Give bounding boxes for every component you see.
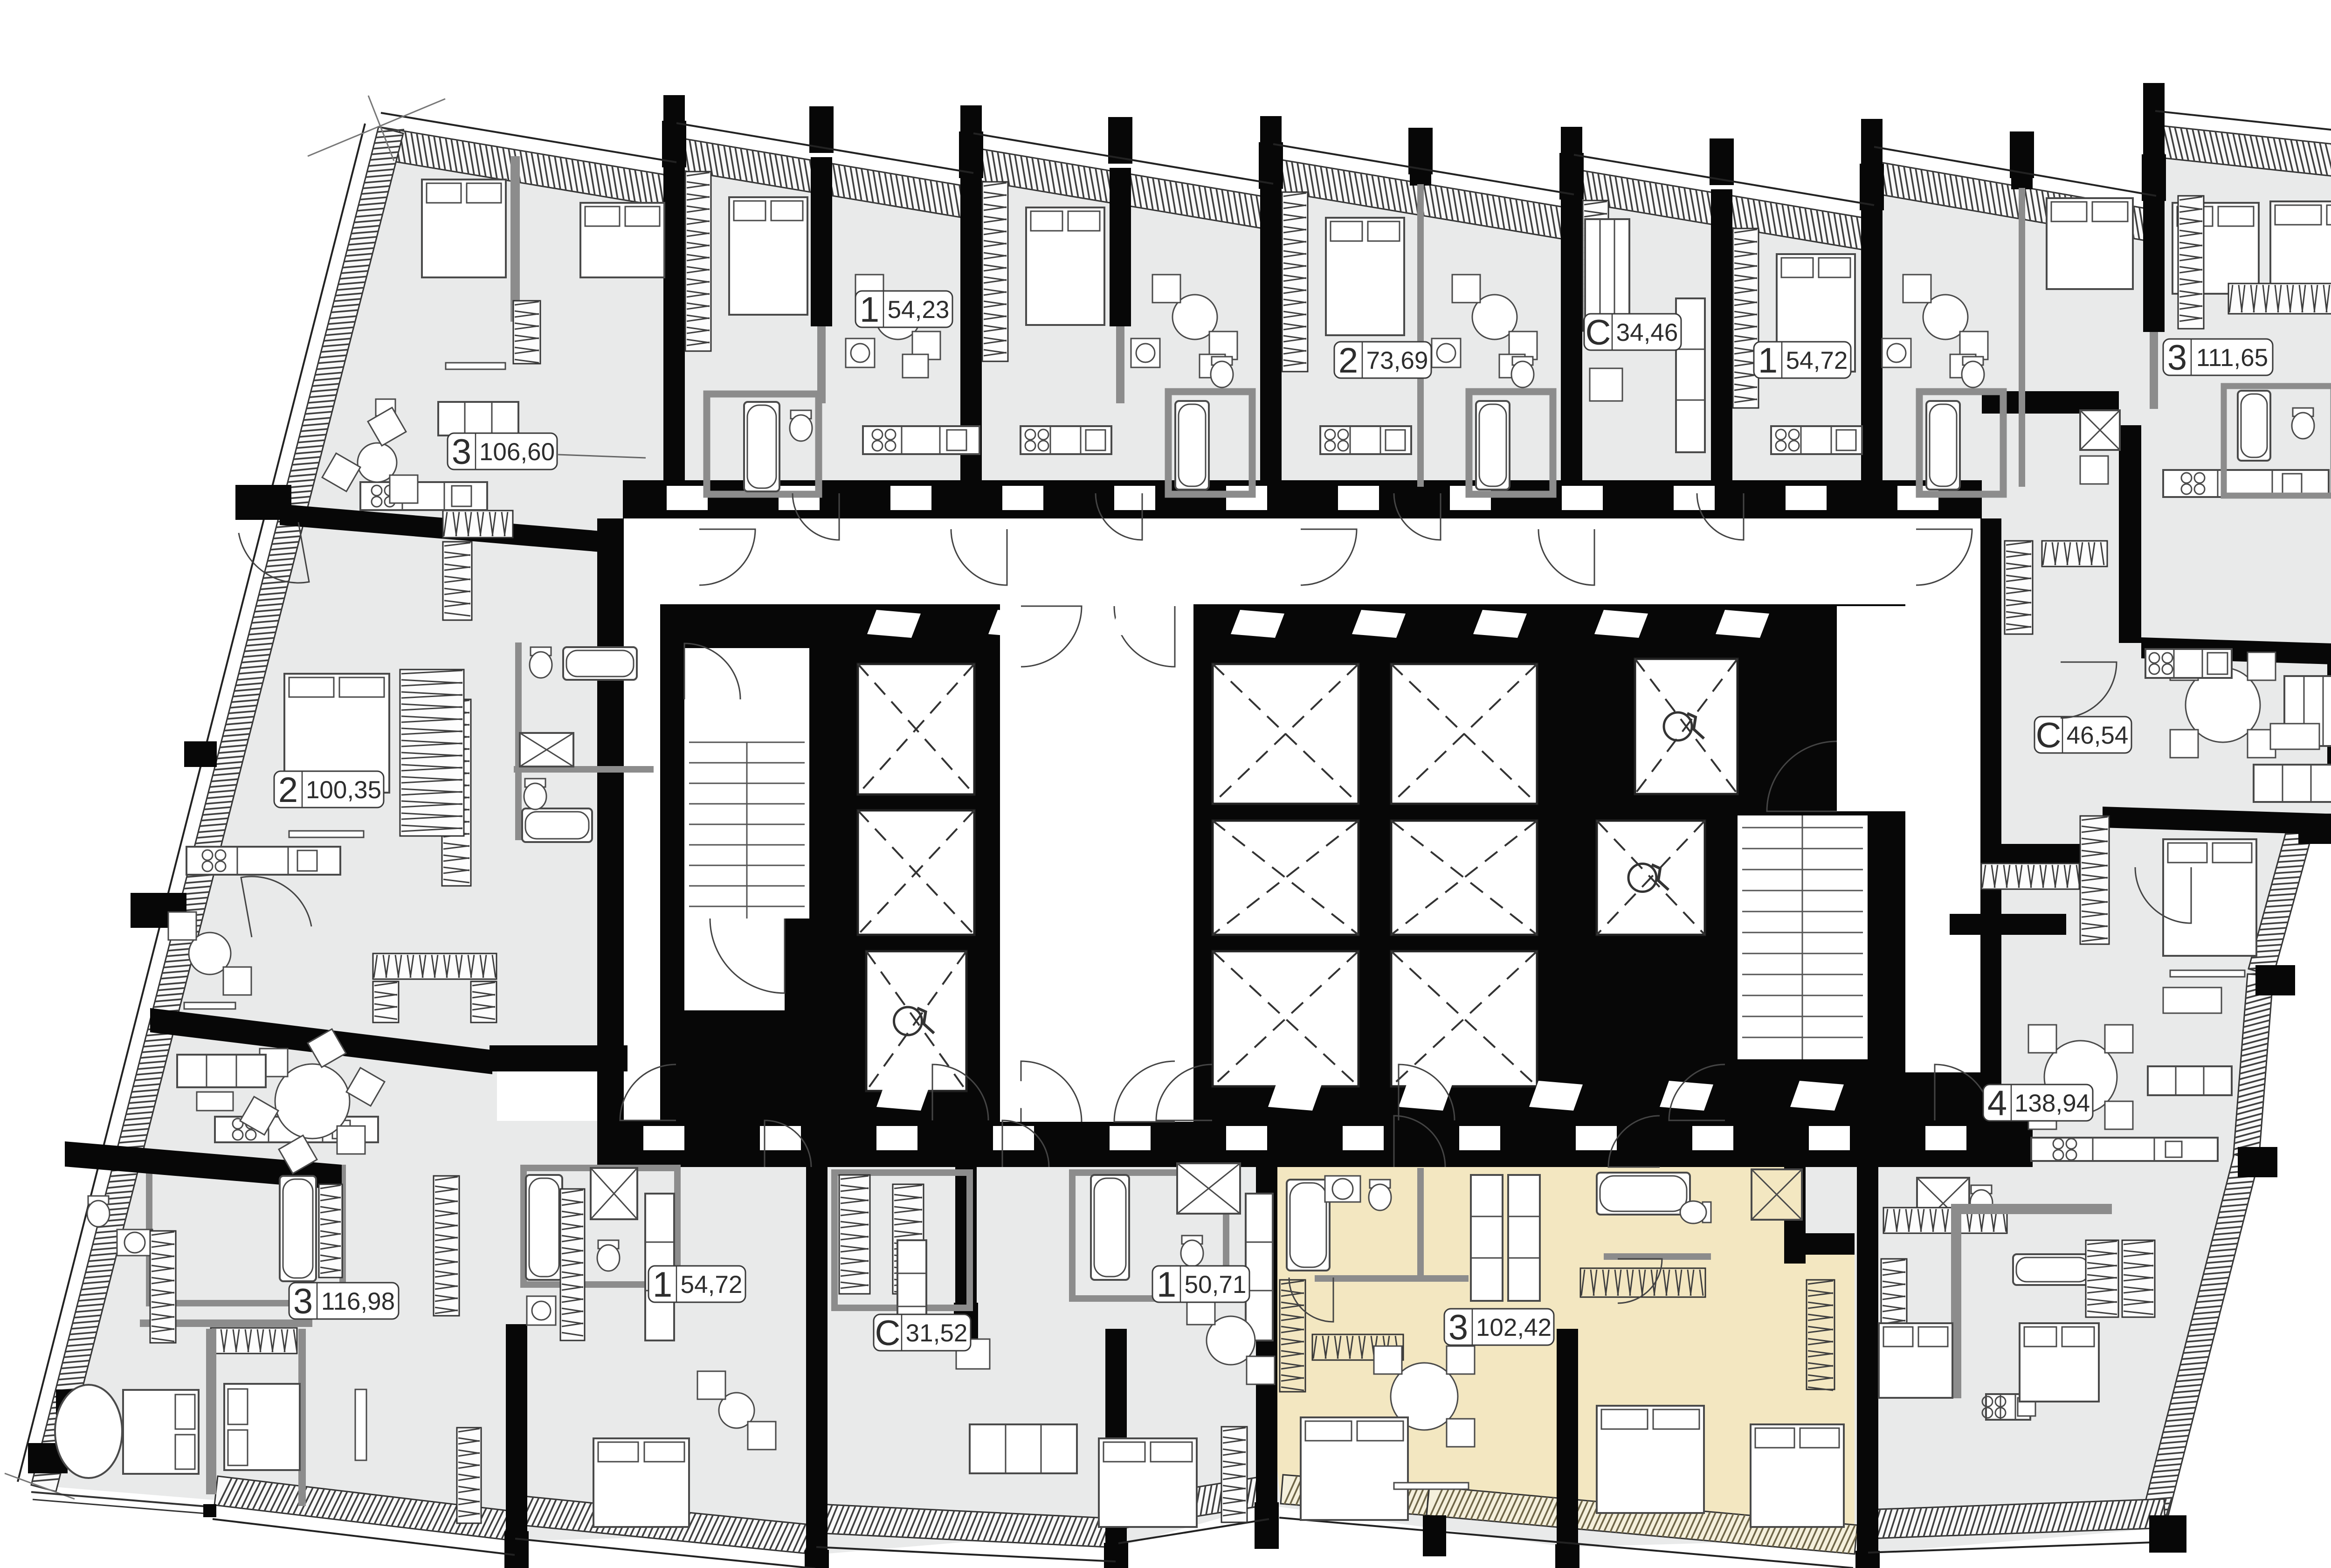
svg-text:C: C — [875, 1313, 901, 1353]
svg-text:1: 1 — [1758, 341, 1778, 380]
svg-text:138,94: 138,94 — [2014, 1090, 2090, 1117]
svg-text:1: 1 — [653, 1265, 672, 1305]
svg-text:C: C — [2036, 716, 2062, 755]
svg-text:C: C — [1586, 313, 1611, 352]
svg-text:4: 4 — [1987, 1084, 2007, 1123]
svg-text:2: 2 — [1338, 341, 1358, 380]
svg-text:3: 3 — [452, 432, 471, 472]
svg-text:73,69: 73,69 — [1366, 347, 1428, 374]
svg-text:3: 3 — [1448, 1308, 1468, 1347]
svg-text:1: 1 — [1157, 1265, 1176, 1305]
svg-text:54,72: 54,72 — [1786, 347, 1848, 374]
svg-text:106,60: 106,60 — [479, 438, 555, 466]
svg-text:2: 2 — [278, 770, 298, 810]
svg-text:1: 1 — [860, 290, 879, 330]
svg-text:3: 3 — [2167, 338, 2187, 378]
svg-text:116,98: 116,98 — [321, 1288, 395, 1315]
svg-text:111,65: 111,65 — [2196, 344, 2268, 372]
svg-text:46,54: 46,54 — [2067, 722, 2129, 749]
svg-text:54,72: 54,72 — [681, 1271, 743, 1299]
svg-text:31,52: 31,52 — [906, 1319, 968, 1347]
svg-text:102,42: 102,42 — [1476, 1314, 1552, 1341]
svg-text:54,23: 54,23 — [888, 296, 950, 324]
svg-text:50,71: 50,71 — [1185, 1271, 1247, 1299]
svg-text:3: 3 — [293, 1282, 313, 1321]
svg-text:34,46: 34,46 — [1616, 319, 1678, 346]
svg-text:100,35: 100,35 — [306, 776, 381, 804]
